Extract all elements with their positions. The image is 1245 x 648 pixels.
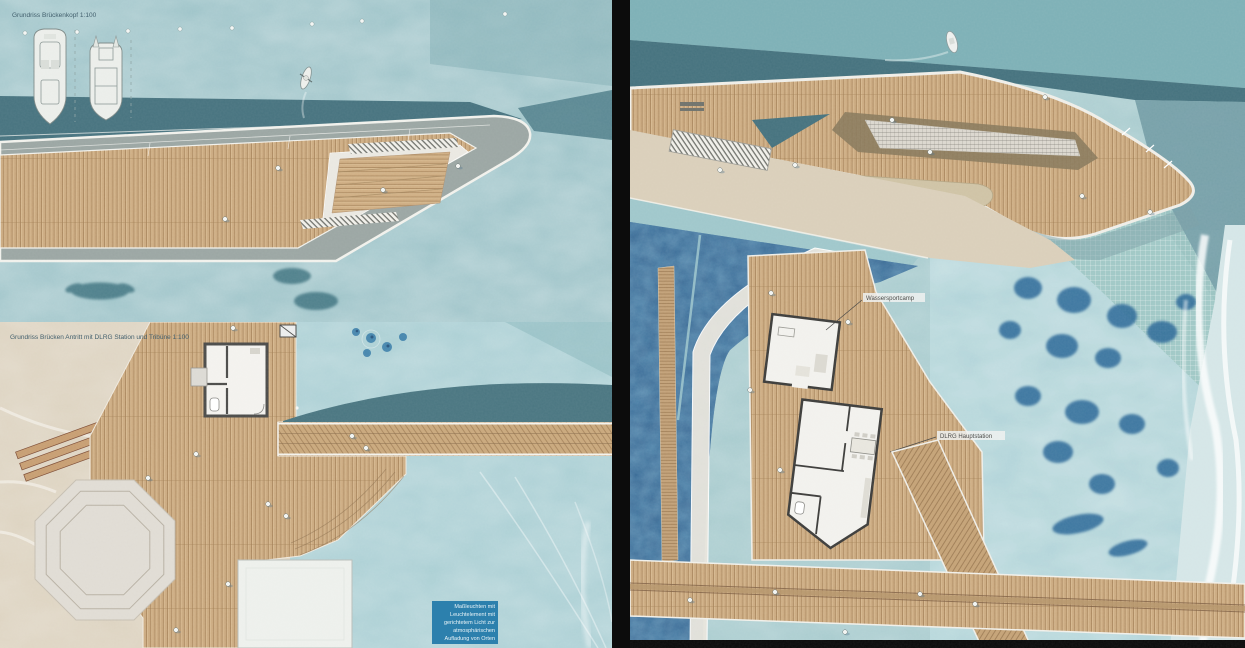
plan-brueckenkopf: Grundriss Brückenkopf 1:100 <box>0 0 612 322</box>
annotation-line: Maßleuchten mit <box>435 603 495 611</box>
plan-pier-detail: Wassersportcamp DLRG Hauptstation <box>630 0 1245 648</box>
annotation-line: Aufladung von Orten <box>435 635 495 643</box>
right-panel: Wassersportcamp DLRG Hauptstation <box>630 0 1245 648</box>
panel-divider <box>612 0 630 648</box>
plan-bruecken-antritt: Grundriss Brücken Antritt mit DLRG Stati… <box>0 322 612 648</box>
annotation-box: Maßleuchten mit Leuchtelement mit gerich… <box>432 601 498 644</box>
annotation-line: gerichtetem Licht zur <box>435 619 495 627</box>
left-panel: Grundriss Brückenkopf 1:100 <box>0 0 612 648</box>
presentation-board: Grundriss Brückenkopf 1:100 <box>0 0 1245 648</box>
annotation-line: Leuchtelement mit <box>435 611 495 619</box>
annotation-line: atmosphärischen <box>435 627 495 635</box>
